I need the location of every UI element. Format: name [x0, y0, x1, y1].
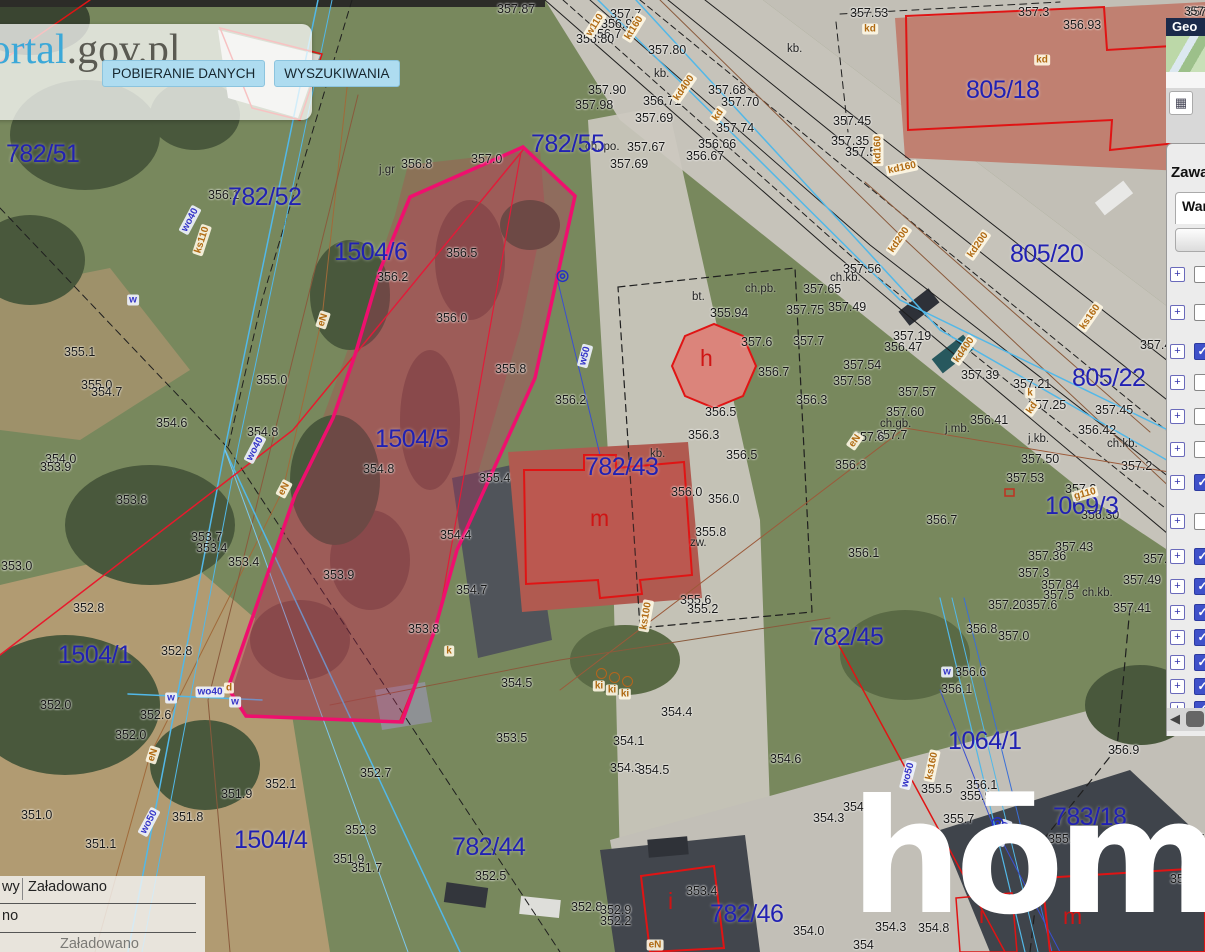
layer-tree-row: +✓ — [1170, 604, 1205, 622]
homfi-watermark: hōmfi — [850, 766, 1205, 950]
elevation-label: 357.0 — [998, 629, 1029, 643]
expand-icon[interactable]: + — [1170, 475, 1185, 490]
surface-annotation: bt. — [692, 291, 705, 303]
elevation-label: 355.8 — [495, 362, 526, 376]
layer-tree-row: +✓ — [1170, 578, 1205, 596]
elevation-label: 351.0 — [21, 808, 52, 822]
expand-icon[interactable]: + — [1170, 514, 1185, 529]
elevation-label: 357.45 — [1095, 403, 1133, 417]
elevation-label: 357.2 — [1121, 459, 1152, 473]
elevation-label: 355.4 — [479, 471, 510, 485]
sidebar-spacer — [1166, 72, 1205, 88]
elevation-label: 354.5 — [638, 763, 669, 777]
expand-icon[interactable]: + — [1170, 409, 1185, 424]
elevation-label: 356.0 — [708, 492, 739, 506]
status-rule-2 — [0, 932, 196, 933]
elevation-label: 353.9 — [40, 460, 71, 474]
utility-label-water: wo50 — [137, 807, 160, 838]
layer-tree-row: + — [1170, 374, 1205, 392]
panel-button[interactable] — [1175, 228, 1205, 252]
elevation-label: 352.0 — [115, 728, 146, 742]
utility-label-sewer: ks160 — [1076, 301, 1103, 333]
parcel-number-label: 1504/1 — [58, 641, 131, 670]
expand-icon[interactable]: + — [1170, 679, 1185, 694]
elevation-label: 354.4 — [440, 528, 471, 542]
elevation-label: 353.8 — [408, 622, 439, 636]
elevation-label: 354.5 — [501, 676, 532, 690]
elevation-label: 354.7 — [456, 583, 487, 597]
elevation-label: 353.9 — [323, 568, 354, 582]
elevation-label: 353.4 — [228, 555, 259, 569]
expand-icon[interactable]: + — [1170, 267, 1185, 282]
elevation-label: 356.7 — [758, 365, 789, 379]
elevation-label: 355.2 — [687, 602, 718, 616]
elevation-label: 352.3 — [345, 823, 376, 837]
elevation-label: 357.49 — [828, 300, 866, 314]
elevation-label: 357.65 — [803, 282, 841, 296]
utility-label-water: wo40 — [195, 687, 224, 698]
utility-label-sewer: kd200 — [885, 224, 913, 257]
elevation-label: 352.7 — [360, 766, 391, 780]
elevation-label: 354.0 — [793, 924, 824, 938]
utility-label-sewer: k — [444, 646, 454, 657]
parcel-number-label: 782/43 — [585, 453, 658, 482]
surface-annotation: ch.kb. — [830, 272, 861, 284]
elevation-label: 356.3 — [835, 458, 866, 472]
elevation-label: 355.94 — [710, 306, 748, 320]
elevation-label: 351.8 — [172, 810, 203, 824]
elevation-label: 357.54 — [843, 358, 881, 372]
elevation-label: 352.0 — [40, 698, 71, 712]
utility-label-sewer: ki — [606, 685, 618, 696]
layer-tree-row: + — [1170, 408, 1205, 426]
expand-icon[interactable]: + — [1170, 344, 1185, 359]
water-valve-symbol: ◎ — [556, 266, 569, 284]
elevation-label: 357.67 — [627, 140, 665, 154]
elevation-label: 357.98 — [575, 98, 613, 112]
status-row2: no — [2, 908, 18, 924]
surface-annotation: ch.kb. — [1107, 438, 1138, 450]
utility-label-sewer: ki — [593, 681, 605, 692]
elevation-label: 356.1 — [848, 546, 879, 560]
elevation-label: 354.6 — [156, 416, 187, 430]
elevation-label: 357.87 — [497, 2, 535, 16]
manhole-symbol — [622, 676, 633, 687]
elevation-label: 356.2 — [377, 270, 408, 284]
parcel-number-label: 782/52 — [228, 183, 301, 212]
elevation-label: 357.39 — [961, 368, 999, 382]
manhole-symbol — [609, 672, 620, 683]
elevation-label: 356.67 — [686, 149, 724, 163]
elevation-label: 357.36 — [1028, 549, 1066, 563]
elevation-label: 352.8 — [571, 900, 602, 914]
utility-label-sewer: ks100 — [638, 599, 654, 632]
elevation-label: 353.4 — [686, 884, 717, 898]
utility-label-sewer: kd160 — [873, 134, 884, 166]
top-toolbar: POBIERANIE DANYCH WYSZUKIWANIA — [102, 60, 400, 87]
elevation-label: 352.8 — [73, 601, 104, 615]
sidebar-header: Geo — [1166, 18, 1205, 36]
elevation-label: 355.1 — [64, 345, 95, 359]
elevation-label: 357.6 — [1026, 598, 1057, 612]
pobieranie-danych-button[interactable]: POBIERANIE DANYCH — [102, 60, 265, 87]
elevation-label: 352.1 — [265, 777, 296, 791]
elevation-label: 356.7 — [926, 513, 957, 527]
surface-annotation: zw. — [690, 537, 707, 549]
layer-checkbox[interactable]: ✓ — [1194, 678, 1205, 695]
elevation-label: 354.8 — [363, 462, 394, 476]
expand-icon[interactable]: + — [1170, 549, 1185, 564]
elevation-label: 352.2 — [600, 914, 631, 928]
elevation-label: 356.1 — [941, 682, 972, 696]
surface-annotation: j.kb. — [1028, 433, 1049, 445]
map-viewport[interactable]: 357.87357.7356.9356.7356.80357.80357.903… — [0, 0, 1205, 952]
building-function-letter: m — [590, 505, 609, 532]
elevation-label: 356.6 — [955, 665, 986, 679]
parcel-number-label: 1064/1 — [948, 727, 1021, 756]
elevation-label: 357.53 — [1006, 471, 1044, 485]
elevation-label: 357.90 — [588, 83, 626, 97]
layer-checkbox[interactable]: ✓ — [1194, 578, 1205, 595]
utility-label-sewer: kd400 — [950, 334, 978, 367]
parcel-number-label: 782/46 — [710, 900, 783, 929]
elevation-label: 356.41 — [970, 413, 1008, 427]
layers-sidebar: 357 Geo ▦ Zawa War +++✓++++✓++✓+✓+✓+✓+✓+… — [1166, 0, 1205, 952]
parcel-number-label: 782/51 — [6, 140, 79, 169]
elevation-label: 356.93 — [1063, 18, 1101, 32]
layer-checkbox[interactable] — [1194, 513, 1205, 530]
elevation-label: 351.9 — [221, 787, 252, 801]
layer-checkbox[interactable] — [1194, 374, 1205, 391]
elevation-label: 356.9 — [1108, 743, 1139, 757]
building-function-letter: i — [668, 888, 673, 915]
layer-tree-row: +✓ — [1170, 654, 1205, 672]
utility-label-sewer: kd — [862, 24, 878, 35]
elevation-label: 353.4 — [196, 541, 227, 555]
utility-label-sewer: kd — [1034, 55, 1050, 66]
layer-tree-row: +✓ — [1170, 474, 1205, 492]
status-rule-1 — [0, 903, 196, 904]
surface-annotation: ch.pb. — [745, 283, 776, 295]
expand-icon[interactable]: + — [1170, 630, 1185, 645]
elevation-label: 351.7 — [351, 861, 382, 875]
elevation-label: 357.70 — [721, 95, 759, 109]
elevation-label: 354.7 — [91, 385, 122, 399]
elevation-label: 357.41 — [1113, 601, 1151, 615]
surface-annotation: kb. — [654, 68, 669, 80]
utility-label-sewer: ks110 — [192, 223, 212, 256]
expand-icon[interactable]: + — [1170, 375, 1185, 390]
elevation-label: 356.5 — [446, 246, 477, 260]
elevation-label: 353.8 — [116, 493, 147, 507]
status-row3: Załadowano — [60, 936, 139, 952]
layer-tree-row: + — [1170, 304, 1205, 322]
expand-icon[interactable]: + — [1170, 579, 1185, 594]
elevation-label: 351.1 — [85, 837, 116, 851]
elevation-label: 357.3 — [1018, 5, 1049, 19]
layer-checkbox[interactable] — [1194, 266, 1205, 283]
parcel-number-label: 805/18 — [966, 76, 1039, 105]
expand-icon[interactable]: + — [1170, 605, 1185, 620]
tab-warstwy[interactable]: War — [1175, 192, 1205, 224]
layer-tree-row: +✓ — [1170, 343, 1205, 361]
parcel-number-label: 782/55 — [531, 130, 604, 159]
sidebar-map-label: 357 — [1184, 4, 1204, 18]
elevation-label: 356.47 — [884, 340, 922, 354]
utility-label-sewer: kd160 — [885, 159, 919, 176]
elevation-label: 356.8 — [401, 157, 432, 171]
utility-label-water: w — [165, 693, 177, 704]
elevation-label: 356.5 — [705, 405, 736, 419]
parcel-number-label: 1504/6 — [334, 238, 407, 267]
wyszukiwania-button[interactable]: WYSZUKIWANIA — [274, 60, 399, 87]
status-row1-left: wy — [2, 879, 20, 895]
logo-text-blue: geoportal — [0, 27, 67, 73]
elevation-label: 356.42 — [1078, 423, 1116, 437]
surface-annotation: j.mb. — [945, 423, 970, 435]
utility-label-sewer: k — [1025, 388, 1035, 399]
parcel-number-label: 1504/4 — [234, 826, 307, 855]
layer-tree-row: +✓ — [1170, 548, 1205, 566]
elevation-label: 352.8 — [161, 644, 192, 658]
layer-checkbox[interactable] — [1194, 304, 1205, 321]
parcel-number-label: 805/20 — [1010, 240, 1083, 269]
layer-checkbox[interactable]: ✓ — [1194, 604, 1205, 621]
surface-annotation: ch.kb. — [1082, 587, 1113, 599]
manhole-symbol — [596, 668, 607, 679]
surface-annotation: kb. — [787, 43, 802, 55]
elevation-label: 352.5 — [475, 869, 506, 883]
layer-checkbox[interactable]: ✓ — [1194, 474, 1205, 491]
horizontal-scrollbar[interactable]: ◀ — [1167, 708, 1205, 731]
elevation-label: 357.49 — [1123, 573, 1161, 587]
parcel-number-label: 782/44 — [452, 833, 525, 862]
elevation-label: 355.0 — [256, 373, 287, 387]
elevation-label: 352.6 — [140, 708, 171, 722]
layer-status-panel: wy Załadowano no Załadowano — [0, 876, 205, 952]
surface-annotation: j.gr — [379, 164, 395, 176]
elevation-label: 353.0 — [1, 559, 32, 573]
utility-label-sewer: eN — [647, 940, 664, 951]
elevation-label: 354.1 — [613, 734, 644, 748]
utility-label-water: w50 — [577, 344, 594, 369]
layer-checkbox[interactable]: ✓ — [1194, 629, 1205, 646]
expand-icon[interactable]: + — [1170, 442, 1185, 457]
elevation-label: 357.69 — [610, 157, 648, 171]
utility-label-sewer: kd400 — [670, 72, 698, 105]
sidebar-toolstrip: ▦ — [1166, 88, 1205, 143]
layer-checkbox[interactable]: ✓ — [1194, 343, 1205, 360]
legend-icon[interactable]: ▦ — [1169, 91, 1193, 115]
map-content-panel: Zawa War +++✓++++✓++✓+✓+✓+✓+✓+✓+✓ ◀ — [1166, 143, 1205, 736]
utility-label-sewer: kd200 — [964, 229, 992, 262]
layer-checkbox[interactable]: ✓ — [1194, 548, 1205, 565]
expand-icon[interactable]: + — [1170, 305, 1185, 320]
utility-label-water: w — [127, 295, 139, 306]
elevation-label: 354.6 — [770, 752, 801, 766]
utility-label-sewer: eN — [315, 310, 331, 329]
elevation-label: 353.5 — [496, 731, 527, 745]
elevation-label: 354.4 — [661, 705, 692, 719]
scroll-left-icon[interactable]: ◀ — [1170, 711, 1180, 727]
utility-label-water: w — [229, 697, 241, 708]
utility-label-sewer: d — [224, 683, 234, 694]
layer-tree-row: + — [1170, 513, 1205, 531]
elevation-label: 357.7 — [793, 334, 824, 348]
overview-map-thumbnail[interactable] — [1166, 36, 1205, 72]
elevation-label: 357.6 — [741, 335, 772, 349]
elevation-label: 356.5 — [726, 448, 757, 462]
parcel-number-label: 1504/5 — [375, 425, 448, 454]
utility-label-sewer: ki — [619, 689, 631, 700]
elevation-label: 357.74 — [716, 121, 754, 135]
elevation-label: 356.0 — [436, 311, 467, 325]
elevation-label: 357.0 — [471, 152, 502, 166]
elevation-label: 356.3 — [688, 428, 719, 442]
elevation-label: 357.69 — [635, 111, 673, 125]
panel-title: Zawa — [1171, 164, 1205, 181]
expand-icon[interactable]: + — [1170, 655, 1185, 670]
elevation-label: 356.8 — [966, 622, 997, 636]
layer-checkbox[interactable] — [1194, 408, 1205, 425]
elevation-label: 357.53 — [850, 6, 888, 20]
elevation-label: 357.80 — [648, 43, 686, 57]
scrollbar-thumb[interactable] — [1186, 711, 1204, 727]
status-row1-right: Załadowano — [28, 879, 107, 895]
elevation-label: 357.75 — [786, 303, 824, 317]
layer-tree-row: +✓ — [1170, 678, 1205, 696]
layer-tree-row: +✓ — [1170, 629, 1205, 647]
elevation-label: 354.3 — [610, 761, 641, 775]
elevation-label: 357.50 — [1021, 452, 1059, 466]
utility-label-water: w — [941, 667, 953, 678]
layer-checkbox[interactable] — [1194, 441, 1205, 458]
elevation-label: 356.2 — [555, 393, 586, 407]
utility-label-sewer: eN — [145, 745, 161, 764]
elevation-label: 357.60 — [886, 405, 924, 419]
status-divider — [22, 878, 23, 900]
elevation-label: 356.0 — [671, 485, 702, 499]
elevation-label: 357.58 — [833, 374, 871, 388]
layer-tree-row: + — [1170, 266, 1205, 284]
elevation-label: 357.57 — [898, 385, 936, 399]
parcel-number-label: 805/22 — [1072, 364, 1145, 393]
surface-annotation: ch.gb. — [880, 418, 911, 430]
layer-checkbox[interactable]: ✓ — [1194, 654, 1205, 671]
layer-tree-row: + — [1170, 441, 1205, 459]
elevation-label: 354.3 — [813, 811, 844, 825]
utility-label-sewer: eN — [275, 479, 293, 499]
parcel-number-label: 782/45 — [810, 623, 883, 652]
elevation-label: 357.20 — [988, 598, 1026, 612]
building-function-letter: h — [700, 345, 713, 372]
elevation-label: 356.3 — [796, 393, 827, 407]
elevation-label: 357.45 — [833, 114, 871, 128]
